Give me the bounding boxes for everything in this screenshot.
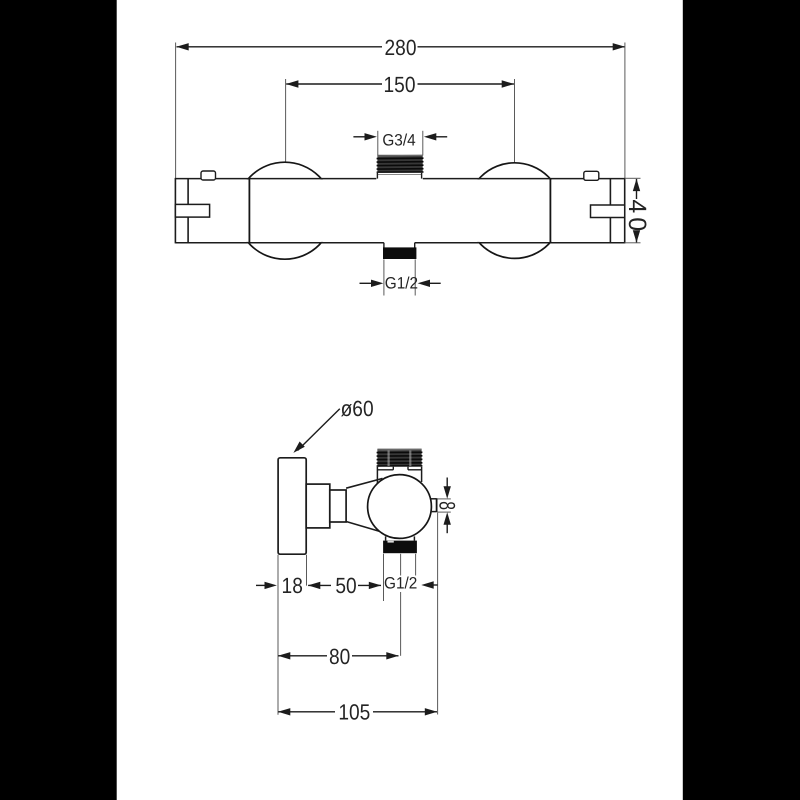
- svg-text:18: 18: [282, 573, 303, 598]
- svg-text:G3/4: G3/4: [382, 131, 415, 149]
- svg-text:G1/2: G1/2: [384, 574, 417, 592]
- svg-text:150: 150: [384, 72, 416, 97]
- svg-text:50: 50: [335, 573, 356, 598]
- svg-text:40: 40: [623, 199, 651, 235]
- svg-text:ø60: ø60: [341, 396, 374, 421]
- svg-text:280: 280: [385, 35, 417, 60]
- svg-text:8: 8: [434, 501, 459, 510]
- svg-text:G1/2: G1/2: [385, 275, 418, 293]
- svg-text:80: 80: [329, 644, 350, 669]
- svg-text:105: 105: [338, 700, 370, 725]
